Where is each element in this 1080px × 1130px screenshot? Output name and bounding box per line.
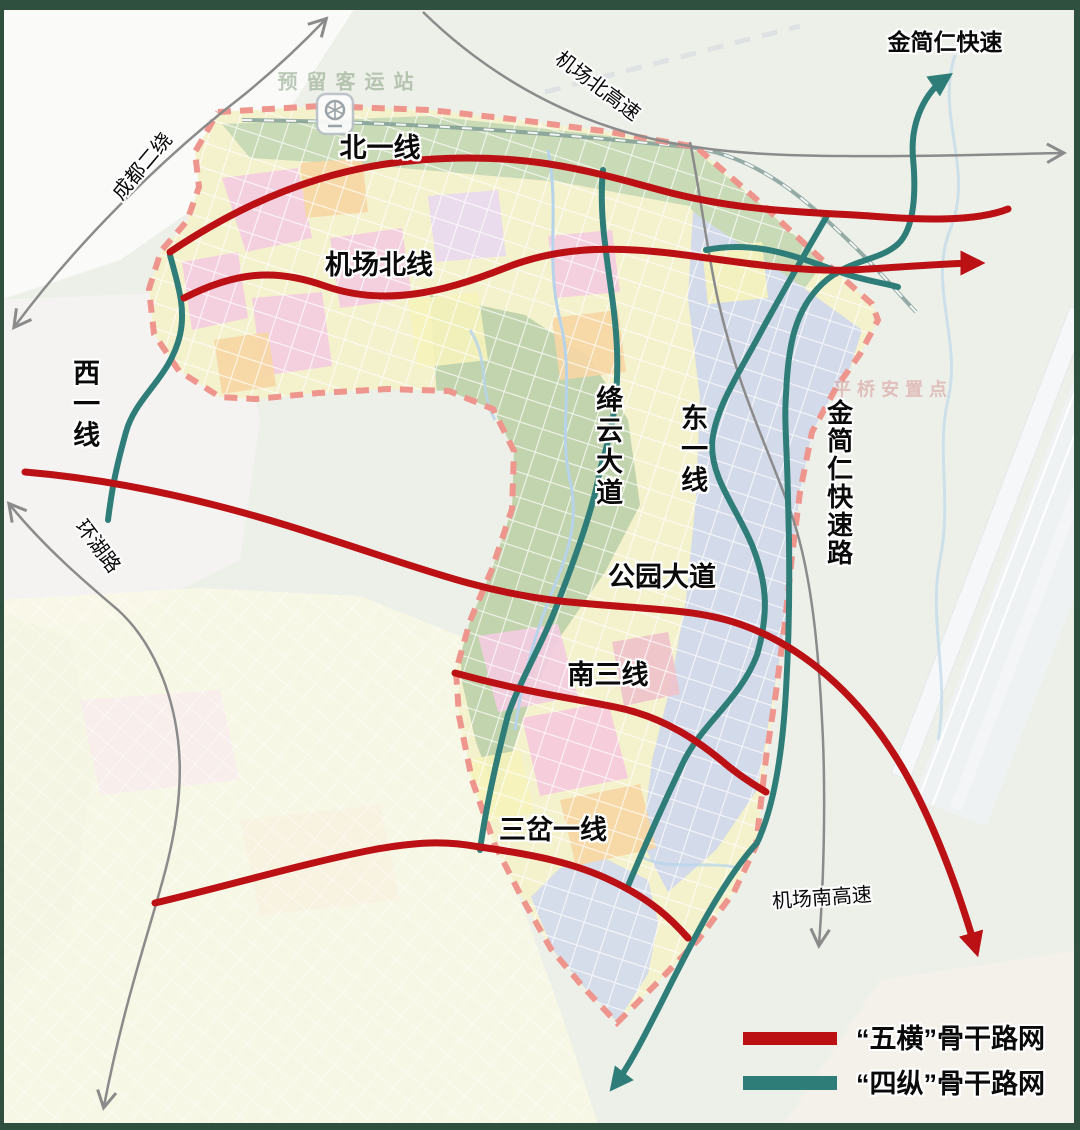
park-avenue-label: 公园大道 (608, 563, 716, 591)
airport-north-line-label: 机场北线 (325, 251, 433, 279)
south-line3-label: 南三线 (568, 661, 649, 689)
jiangyun-avenue-label: 绛云大道 (593, 385, 621, 509)
reserved-station-label: 预留客运站 (278, 73, 423, 94)
planning-map: 预留客运站 平桥安置点 金简仁快速 机场北高速 成都二绕 环湖路 机场南高速 北… (0, 0, 1080, 1130)
sancha-line1-label: 三岔一线 (499, 816, 607, 844)
map-canvas (0, 0, 1080, 1130)
west-line1-label: 西一线 (70, 359, 98, 452)
railway-station-icon (317, 94, 353, 134)
legend-label-five-horizontal: “五横”骨干路网 (856, 1025, 1045, 1053)
legend-swatch-teal (743, 1076, 837, 1090)
legend-label-four-vertical: “四纵”骨干路网 (856, 1070, 1045, 1098)
jinjianren-expressway-label-north: 金简仁快速 (888, 30, 1003, 54)
jinjianren-expressway-road-label: 金简仁快速路 (824, 399, 851, 567)
north-line1-label: 北一线 (340, 134, 421, 162)
east-line1-label: 东一线 (678, 404, 706, 497)
pingqiao-settlement-label: 平桥安置点 (833, 381, 953, 400)
legend-swatch-red (743, 1032, 837, 1045)
